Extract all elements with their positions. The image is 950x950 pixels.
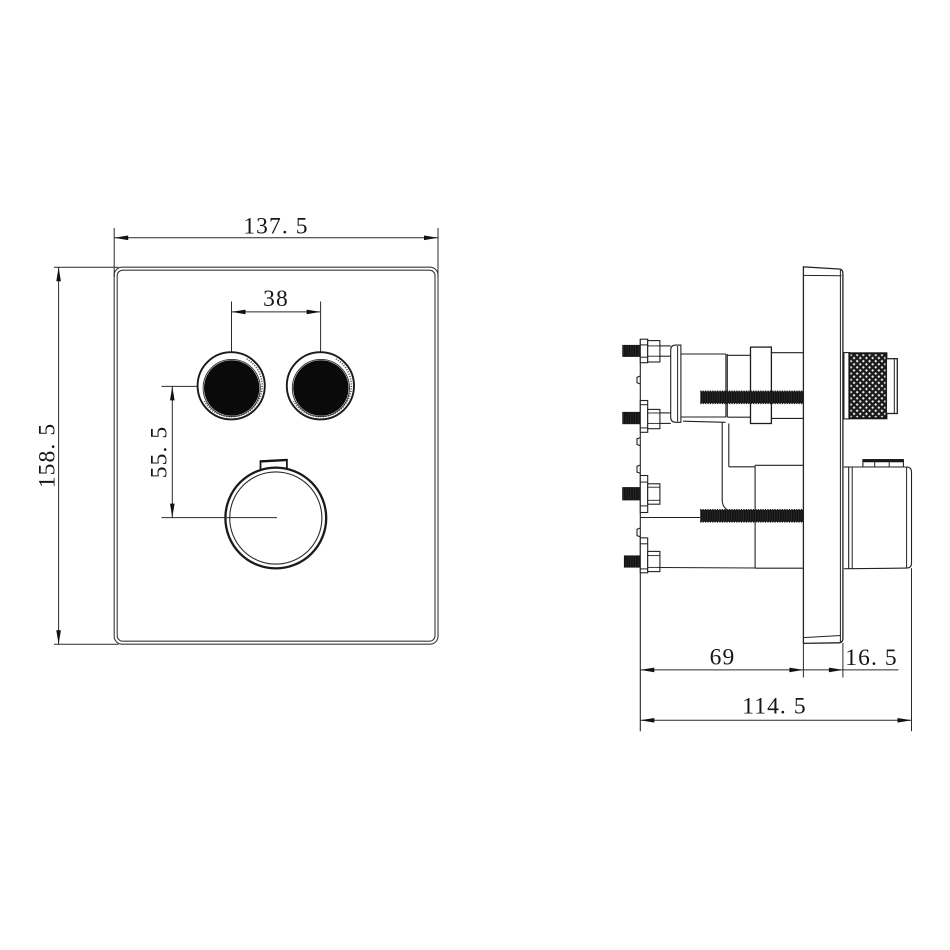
svg-text:69: 69 xyxy=(710,644,736,670)
svg-text:55. 5: 55. 5 xyxy=(147,426,173,479)
svg-text:38: 38 xyxy=(263,286,289,312)
svg-text:137. 5: 137. 5 xyxy=(243,214,308,240)
svg-text:158. 5: 158. 5 xyxy=(35,423,61,488)
svg-text:16. 5: 16. 5 xyxy=(845,645,898,671)
svg-text:114. 5: 114. 5 xyxy=(742,694,806,720)
